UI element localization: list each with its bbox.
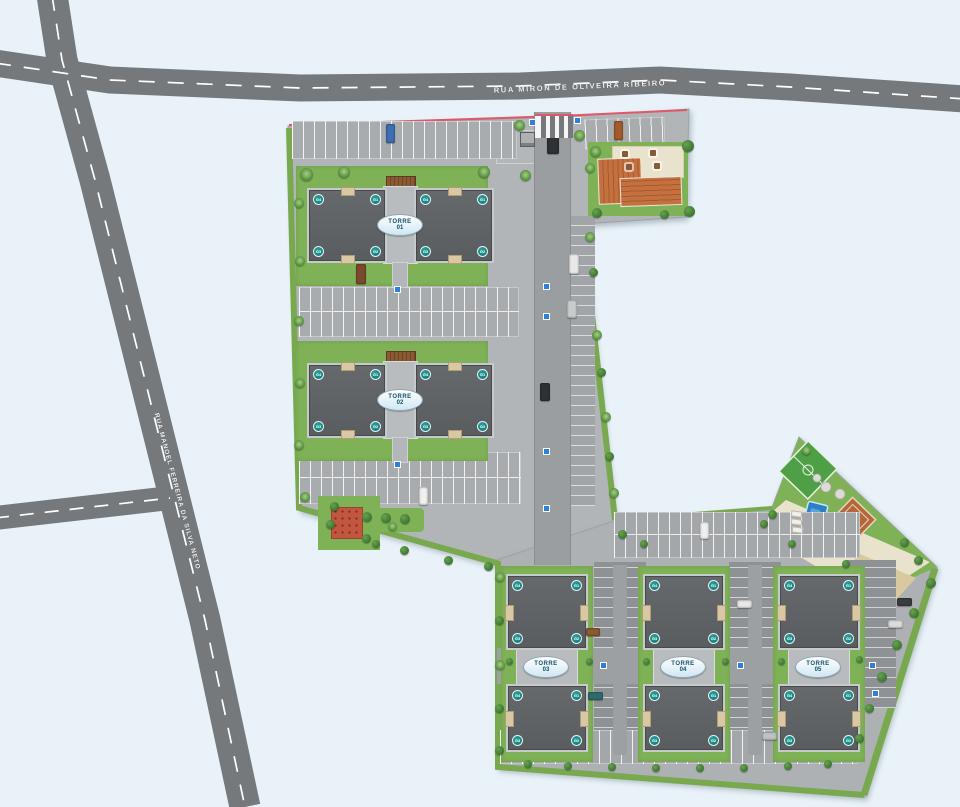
unit-badge: G1	[571, 690, 582, 701]
tower-number: 04	[680, 667, 687, 673]
palm-tree-icon	[294, 198, 304, 208]
car-icon	[588, 692, 603, 700]
patio-table	[622, 151, 628, 157]
unit-badge: G4	[649, 690, 660, 701]
tree-icon	[326, 520, 335, 529]
parking-band	[614, 512, 860, 558]
palm-tree-icon	[300, 492, 310, 502]
palm-tree-icon	[601, 412, 611, 422]
unit-badge: G2	[843, 633, 854, 644]
car-icon	[569, 254, 579, 274]
residential-building: G4 G1 G3 G2	[508, 686, 586, 750]
car-icon	[356, 264, 366, 284]
tower-label-02: TORRE 02	[377, 389, 423, 411]
entrance-post	[574, 117, 581, 124]
palm-tree-icon	[520, 170, 531, 181]
residential-building: G4 G1 G3 G2	[645, 686, 723, 750]
unit-badge: G4	[420, 194, 431, 205]
umbrella-icon	[835, 489, 845, 499]
tree-icon	[495, 704, 504, 713]
plaza-walkway	[392, 437, 408, 463]
tower-group-04: G4 G1 G3 G2 G4 G1 G3 G2 TORRE 04	[638, 566, 730, 762]
tree-icon	[372, 540, 380, 548]
tree-icon	[444, 556, 453, 565]
tree-icon	[640, 540, 648, 548]
unit-badge: G3	[649, 633, 660, 644]
stairs	[341, 362, 355, 371]
unit-badge: G2	[477, 421, 488, 432]
gatehouse	[520, 132, 535, 147]
unit-badge: G2	[370, 421, 381, 432]
car-icon	[897, 598, 912, 606]
stairs	[448, 187, 462, 196]
unit-badge: G1	[477, 194, 488, 205]
tree-icon	[926, 578, 936, 588]
tree-icon	[495, 616, 504, 625]
residential-building: G4 G1 G3 G2	[780, 576, 858, 648]
tree-icon	[900, 538, 909, 547]
unit-badge: G1	[708, 690, 719, 701]
tree-icon	[660, 210, 669, 219]
accessible-parking-marker-icon	[737, 662, 744, 669]
parking-divider	[614, 534, 860, 535]
accessible-parking-marker-icon	[600, 662, 607, 669]
patio-table	[650, 150, 656, 156]
parking-band	[299, 287, 519, 337]
stairs	[852, 605, 861, 621]
tree-icon	[618, 530, 627, 539]
tower-group-01: G4 G1 G3 G2 G4 G1 G3 G2 TORRE 01	[296, 166, 488, 286]
stairs	[642, 605, 651, 621]
palm-tree-icon	[495, 660, 505, 670]
tree-icon	[696, 764, 704, 772]
tower-number: 01	[397, 225, 404, 231]
tower-label-03: TORRE 03	[523, 656, 569, 678]
tree-icon	[788, 540, 796, 548]
palm-tree-icon	[294, 440, 304, 450]
clubhouse-roof	[620, 176, 683, 207]
unit-badge: G2	[370, 246, 381, 257]
stairs	[580, 711, 589, 727]
residential-building: G4 G1 G3 G2	[309, 190, 385, 261]
stairs	[505, 711, 514, 727]
residential-building: G4 G1 G3 G2	[416, 365, 492, 436]
umbrella-icon	[813, 474, 821, 482]
tower-number: 03	[543, 667, 550, 673]
tree-icon	[605, 452, 614, 461]
umbrella-icon	[821, 482, 831, 492]
tower-label-04: TORRE 04	[660, 656, 706, 678]
stairs	[717, 711, 726, 727]
unit-badge: G2	[708, 735, 719, 746]
tree-icon	[506, 658, 513, 665]
playground-mat	[331, 507, 363, 539]
car-icon	[700, 522, 709, 539]
stairs	[777, 711, 786, 727]
unit-badge: G2	[843, 735, 854, 746]
unit-badge: G4	[313, 369, 324, 380]
tree-icon	[597, 368, 606, 377]
tree-icon	[856, 656, 863, 663]
car-icon	[386, 124, 395, 143]
stairs	[341, 430, 355, 439]
unit-badge: G3	[512, 633, 523, 644]
unit-badge: G1	[477, 369, 488, 380]
parking-divider	[299, 477, 521, 478]
tree-icon	[784, 762, 792, 770]
palm-tree-icon	[294, 316, 304, 326]
car-icon	[614, 121, 623, 140]
tree-icon	[760, 520, 768, 528]
unit-badge: G4	[313, 194, 324, 205]
parking-row-top	[292, 121, 517, 159]
unit-badge: G1	[571, 580, 582, 591]
stairs	[717, 605, 726, 621]
tree-icon	[589, 268, 598, 277]
accessible-parking-marker-icon	[543, 448, 550, 455]
stairs	[448, 255, 462, 264]
patio-table	[654, 163, 660, 169]
tree-icon	[495, 746, 504, 755]
tower-group-05: G4 G1 G3 G2 G4 G1 G3 G2 TORRE 05	[773, 566, 865, 762]
palm-tree-icon	[388, 522, 397, 531]
tower-number: 05	[815, 667, 822, 673]
tree-icon	[722, 658, 729, 665]
unit-badge: G3	[649, 735, 660, 746]
tree-icon	[909, 608, 919, 618]
car-icon	[737, 600, 752, 608]
residential-building: G4 G1 G3 G2	[508, 576, 586, 648]
car-icon	[762, 732, 777, 740]
tree-icon	[865, 704, 874, 713]
residential-building: G4 G1 G3 G2	[309, 365, 385, 436]
patio-table	[626, 164, 632, 170]
unit-badge: G3	[313, 421, 324, 432]
palm-tree-icon	[300, 168, 313, 181]
residential-building: G4 G1 G3 G2	[780, 686, 858, 750]
diagonal-road	[52, 0, 245, 807]
stairs	[580, 605, 589, 621]
residential-building: G4 G1 G3 G2	[416, 190, 492, 261]
tree-icon	[740, 764, 748, 772]
unit-badge: G3	[313, 246, 324, 257]
unit-badge: G1	[843, 690, 854, 701]
tree-icon	[484, 562, 493, 571]
tree-icon	[330, 502, 339, 511]
plaza-walkway	[392, 262, 408, 288]
accessible-parking-marker-icon	[869, 662, 876, 669]
accessible-parking-marker-icon	[872, 690, 879, 697]
unit-badge: G4	[784, 690, 795, 701]
tree-icon	[914, 556, 923, 565]
accessible-parking-marker-icon	[394, 286, 401, 293]
accessible-parking-marker-icon	[543, 283, 550, 290]
unit-badge: G3	[420, 246, 431, 257]
car-icon	[419, 487, 428, 505]
palm-tree-icon	[295, 378, 305, 388]
tower-group-02: G4 G1 G3 G2 G4 G1 G3 G2 TORRE 02	[296, 341, 488, 461]
stairs	[341, 255, 355, 264]
unit-badge: G1	[708, 580, 719, 591]
tower-label-05: TORRE 05	[795, 656, 841, 678]
tree-icon	[778, 658, 785, 665]
palm-tree-icon	[585, 163, 595, 173]
tree-icon	[592, 208, 602, 218]
palm-tree-icon	[514, 120, 525, 131]
car-icon	[586, 628, 600, 636]
unit-badge: G1	[370, 369, 381, 380]
unit-badge: G3	[420, 421, 431, 432]
unit-badge: G3	[512, 735, 523, 746]
palm-tree-icon	[574, 130, 585, 141]
unit-badge: G4	[512, 690, 523, 701]
tree-icon	[652, 764, 660, 772]
tree-icon	[400, 514, 410, 524]
tree-icon	[824, 760, 832, 768]
unit-badge: G4	[512, 580, 523, 591]
parking-divider	[299, 311, 519, 312]
palm-tree-icon	[478, 166, 490, 178]
palm-tree-icon	[585, 232, 595, 242]
tree-icon	[362, 512, 372, 522]
tree-icon	[564, 762, 572, 770]
tree-icon	[608, 763, 616, 771]
tree-icon	[400, 546, 409, 555]
tree-icon	[682, 140, 694, 152]
unit-badge: G2	[477, 246, 488, 257]
accessible-parking-marker-icon	[543, 313, 550, 320]
unit-badge: G3	[784, 735, 795, 746]
tree-icon	[855, 734, 864, 743]
tree-icon	[586, 658, 593, 665]
unit-badge: G4	[649, 580, 660, 591]
car-icon	[567, 300, 577, 318]
unit-badge: G4	[420, 369, 431, 380]
palm-tree-icon	[495, 572, 505, 582]
site-plan-map: RUA MIRON DE OLIVEIRA RIBEIRO RUA MANOEL…	[0, 0, 960, 807]
accessible-parking-marker-icon	[394, 461, 401, 468]
accessible-parking-marker-icon	[543, 505, 550, 512]
car-icon	[540, 383, 550, 401]
tower-group-03: G4 G1 G3 G2 G4 G1 G3 G2 TORRE 03	[501, 566, 593, 762]
tree-icon	[362, 534, 371, 543]
unit-badge: G2	[708, 633, 719, 644]
tree-icon	[684, 206, 695, 217]
palm-tree-icon	[295, 256, 305, 266]
palm-tree-icon	[338, 166, 350, 178]
residential-building: G4 G1 G3 G2	[645, 576, 723, 648]
unit-badge: G1	[843, 580, 854, 591]
palm-tree-icon	[609, 488, 619, 498]
unit-badge: G1	[370, 194, 381, 205]
stairs	[642, 711, 651, 727]
palm-tree-icon	[802, 446, 811, 455]
unit-badge: G4	[784, 580, 795, 591]
unit-badge: G2	[571, 735, 582, 746]
stairs	[448, 430, 462, 439]
tree-icon	[892, 640, 902, 650]
stairs	[341, 187, 355, 196]
car-icon	[888, 620, 903, 628]
stairs	[448, 362, 462, 371]
tree-icon	[842, 560, 850, 568]
palm-tree-icon	[590, 146, 601, 157]
internal-road	[534, 112, 571, 565]
stairs	[852, 711, 861, 727]
tree-icon	[877, 672, 887, 682]
tree-icon	[643, 658, 650, 665]
unit-badge: G2	[571, 633, 582, 644]
tree-icon	[524, 760, 532, 768]
tower-number: 02	[397, 400, 404, 406]
entrance-crosswalk	[535, 114, 573, 138]
stairs	[777, 605, 786, 621]
palm-tree-icon	[592, 330, 602, 340]
stairs	[505, 605, 514, 621]
tree-icon	[768, 510, 777, 519]
tower-label-01: TORRE 01	[377, 214, 423, 236]
unit-badge: G3	[784, 633, 795, 644]
